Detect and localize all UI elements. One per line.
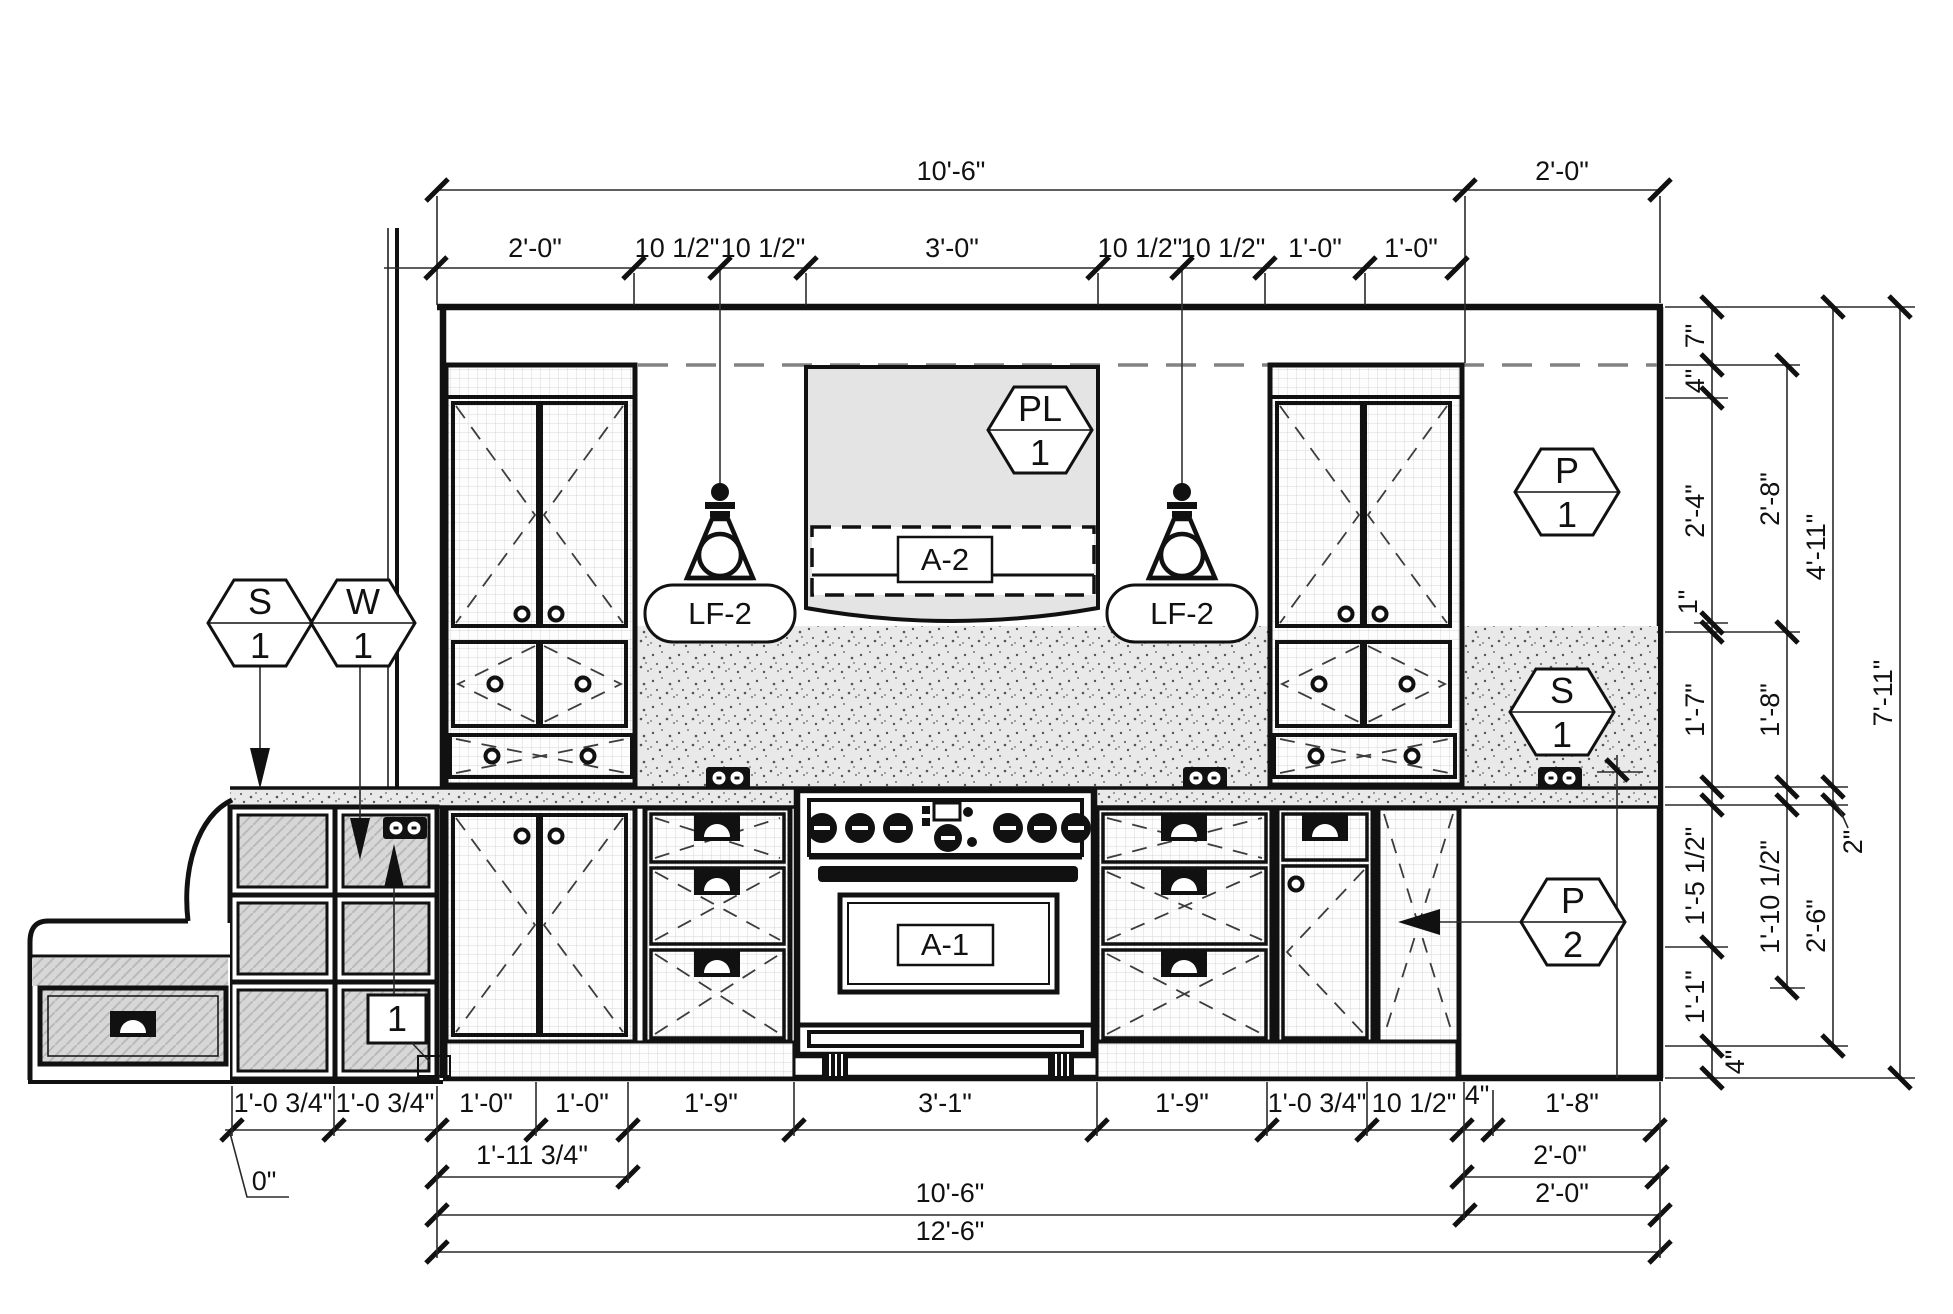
range: A-1 (797, 790, 1094, 1078)
svg-text:10 1/2": 10 1/2" (721, 233, 806, 263)
svg-text:1'-0": 1'-0" (555, 1088, 609, 1118)
svg-text:1'-0": 1'-0" (1288, 233, 1342, 263)
dimension-top-row2: 2'-0" 10 1/2" 10 1/2" 3'-0" 10 1/2" 10 1… (384, 233, 1468, 305)
pendant-light-left: LF-2 (645, 268, 795, 642)
outlet-icon (1538, 767, 1582, 789)
pendant-label: LF-2 (1150, 596, 1214, 631)
upper-cabinet-right (1270, 365, 1462, 785)
svg-text:10 1/2": 10 1/2" (635, 233, 720, 263)
svg-text:3'-1": 3'-1" (918, 1088, 972, 1118)
svg-text:1'-5 1/2": 1'-5 1/2" (1680, 827, 1710, 926)
tag-number: 1 (250, 625, 270, 666)
base-cabinet-door-right (1277, 808, 1373, 1042)
svg-text:2'-0": 2'-0" (1533, 1140, 1587, 1170)
svg-text:1": 1" (1673, 590, 1703, 615)
outlet-icon (383, 817, 427, 839)
range-label: A-1 (921, 927, 969, 962)
svg-text:4": 4" (1720, 1050, 1750, 1075)
svg-text:2'-6": 2'-6" (1801, 899, 1831, 953)
svg-text:1'-0 3/4": 1'-0 3/4" (234, 1088, 333, 1118)
dimension-right-columns: 7" 4" 2'-4" 1" 1'-7" 1'-5 1/2" 1'-1" 4" … (1665, 296, 1915, 1089)
svg-text:1'-10 1/2": 1'-10 1/2" (1755, 840, 1785, 954)
left-wall-return (388, 228, 397, 788)
upper-cabinet-left (446, 365, 635, 785)
backsplash-center (635, 626, 1270, 788)
svg-text:1'-9": 1'-9" (1155, 1088, 1209, 1118)
svg-text:1'-8": 1'-8" (1755, 683, 1785, 737)
svg-text:4": 4" (1465, 1080, 1490, 1110)
svg-text:7": 7" (1680, 324, 1710, 349)
bench-seat (30, 800, 232, 1080)
svg-text:10 1/2": 10 1/2" (1098, 233, 1183, 263)
tag-letter: S (1550, 670, 1574, 711)
keynote-number: 1 (387, 998, 407, 1039)
svg-text:0": 0" (252, 1166, 277, 1196)
tag-panel-upper-right: P 1 (1515, 449, 1619, 535)
svg-text:2'-4": 2'-4" (1680, 484, 1710, 538)
pendant-label: LF-2 (688, 596, 752, 631)
hood-label: A-2 (921, 542, 969, 577)
svg-text:2'-0": 2'-0" (1535, 1178, 1589, 1208)
tag-letter: S (248, 581, 272, 622)
base-cabinet-doors-left (446, 808, 635, 1042)
svg-text:1'-8": 1'-8" (1545, 1088, 1599, 1118)
elevation-drawing: A-2 PL 1 LF-2 LF-2 A-1 (0, 0, 1953, 1314)
svg-text:1'-0 3/4": 1'-0 3/4" (1268, 1088, 1367, 1118)
svg-text:4": 4" (1680, 369, 1710, 394)
svg-text:10'-6": 10'-6" (917, 156, 986, 186)
tag-letter: P (1555, 450, 1579, 491)
tag-letter: W (346, 581, 380, 622)
svg-text:7'-11": 7'-11" (1868, 660, 1898, 727)
tag-letter: P (1561, 880, 1585, 921)
svg-text:1'-0": 1'-0" (1384, 233, 1438, 263)
base-drawer-stack-right (1097, 808, 1272, 1042)
svg-text:1'-7": 1'-7" (1680, 683, 1710, 737)
oven-handle (818, 866, 1078, 882)
outlet-icon (706, 767, 750, 789)
svg-text:2'-0": 2'-0" (508, 233, 562, 263)
dimension-top-row1: 10'-6" 2'-0" (426, 156, 1671, 363)
svg-text:1'-0 3/4": 1'-0 3/4" (336, 1088, 435, 1118)
svg-text:2": 2" (1838, 830, 1868, 855)
base-end-panel (1378, 808, 1459, 1078)
svg-text:10'-6": 10'-6" (916, 1178, 985, 1208)
svg-text:4'-11": 4'-11" (1801, 514, 1831, 581)
svg-text:1'-9": 1'-9" (684, 1088, 738, 1118)
svg-text:2'-8": 2'-8" (1755, 472, 1785, 526)
svg-text:2'-0": 2'-0" (1535, 156, 1589, 186)
svg-text:1'-11 3/4": 1'-11 3/4" (476, 1140, 588, 1170)
kitchen-elevation-sheet: A-2 PL 1 LF-2 LF-2 A-1 (0, 0, 1953, 1314)
pendant-light-right: LF-2 (1107, 268, 1257, 642)
svg-text:3'-0": 3'-0" (925, 233, 979, 263)
outlet-icon (1183, 767, 1227, 789)
svg-text:10 1/2": 10 1/2" (1181, 233, 1266, 263)
base-drawer-stack-left (645, 808, 790, 1042)
tag-number: 2 (1563, 924, 1583, 965)
tag-number: 1 (1557, 494, 1577, 535)
svg-text:1'-0": 1'-0" (459, 1088, 513, 1118)
tag-letter: PL (1018, 388, 1062, 429)
tag-number: 1 (1030, 432, 1050, 473)
svg-text:1'-1": 1'-1" (1680, 970, 1710, 1024)
tag-number: 1 (1552, 714, 1572, 755)
dimension-zero-note: 0" (230, 1133, 289, 1197)
tag-surface-left: S 1 (208, 580, 312, 789)
svg-text:12'-6": 12'-6" (916, 1216, 985, 1246)
tag-number: 1 (353, 625, 373, 666)
svg-text:10 1/2": 10 1/2" (1372, 1088, 1457, 1118)
